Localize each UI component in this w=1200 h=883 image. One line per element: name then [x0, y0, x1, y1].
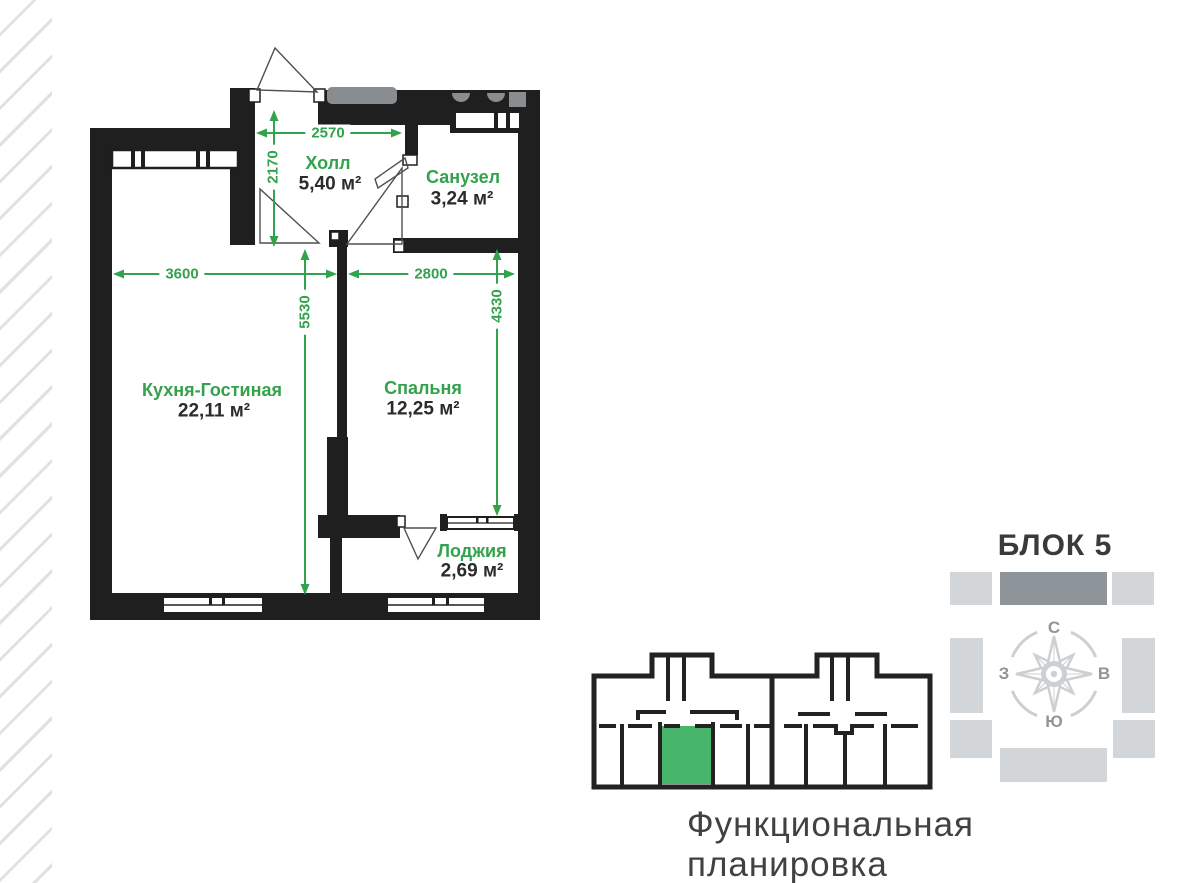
loggia-bottom-window: [387, 597, 485, 613]
dim-bedroom-depth: 4330: [489, 283, 506, 328]
dim-kitchen-width: 3600: [159, 266, 204, 283]
entrance-door-swing: [257, 48, 317, 92]
key-plan-outline: [594, 655, 930, 787]
block-tile-top-center-highlighted: [1000, 572, 1107, 605]
room-label-hall: Холл: [305, 154, 350, 172]
room-area-kitchen: 22,11 м²: [178, 402, 250, 421]
dim-hall-width: 2570: [305, 125, 350, 142]
room-area-bathroom: 3,24 м²: [431, 190, 494, 209]
compass-south-label: Ю: [1045, 712, 1063, 732]
room-area-loggia: 2,69 м²: [441, 562, 504, 581]
compass-west-label: З: [999, 664, 1010, 684]
block-tile-bottom-center: [1000, 748, 1107, 782]
block-tile-mid-left: [950, 638, 983, 713]
room-label-bedroom: Спальня: [384, 379, 462, 397]
dim-hall-depth: 2170: [265, 144, 282, 189]
bedroom-loggia-window: [447, 517, 514, 529]
room-area-hall: 5,40 м²: [299, 175, 362, 194]
block-tile-top-left: [950, 572, 992, 605]
block-tile-mid-right: [1122, 638, 1155, 713]
dim-bedroom-width: 2800: [408, 266, 453, 283]
kitchen-door-swing: [260, 189, 319, 243]
screenshot-root: 2570 2170 3600 2800 5530 4330 Холл 5,40 …: [0, 0, 1200, 883]
block-title: БЛОК 5: [998, 529, 1113, 563]
selected-unit-highlight: [662, 726, 712, 784]
block-tile-bottom-right: [1113, 720, 1155, 758]
building-key-plan: [585, 645, 940, 795]
room-label-loggia: Лоджия: [437, 542, 506, 560]
block-tile-bottom-left: [950, 720, 992, 758]
room-label-kitchen: Кухня-Гостиная: [142, 381, 282, 399]
compass-north-label: С: [1048, 618, 1060, 638]
block-tile-top-right: [1112, 572, 1154, 605]
kitchen-bottom-window: [163, 597, 263, 613]
dim-kitchen-depth: 5530: [297, 289, 314, 334]
loggia-door-swing: [404, 528, 436, 559]
kitchen-top-window: [112, 150, 238, 168]
room-label-bathroom: Санузел: [426, 168, 500, 186]
room-area-bedroom: 12,25 м²: [386, 400, 459, 419]
page-caption: Функциональная планировка: [687, 805, 1029, 883]
compass-east-label: В: [1098, 664, 1110, 684]
